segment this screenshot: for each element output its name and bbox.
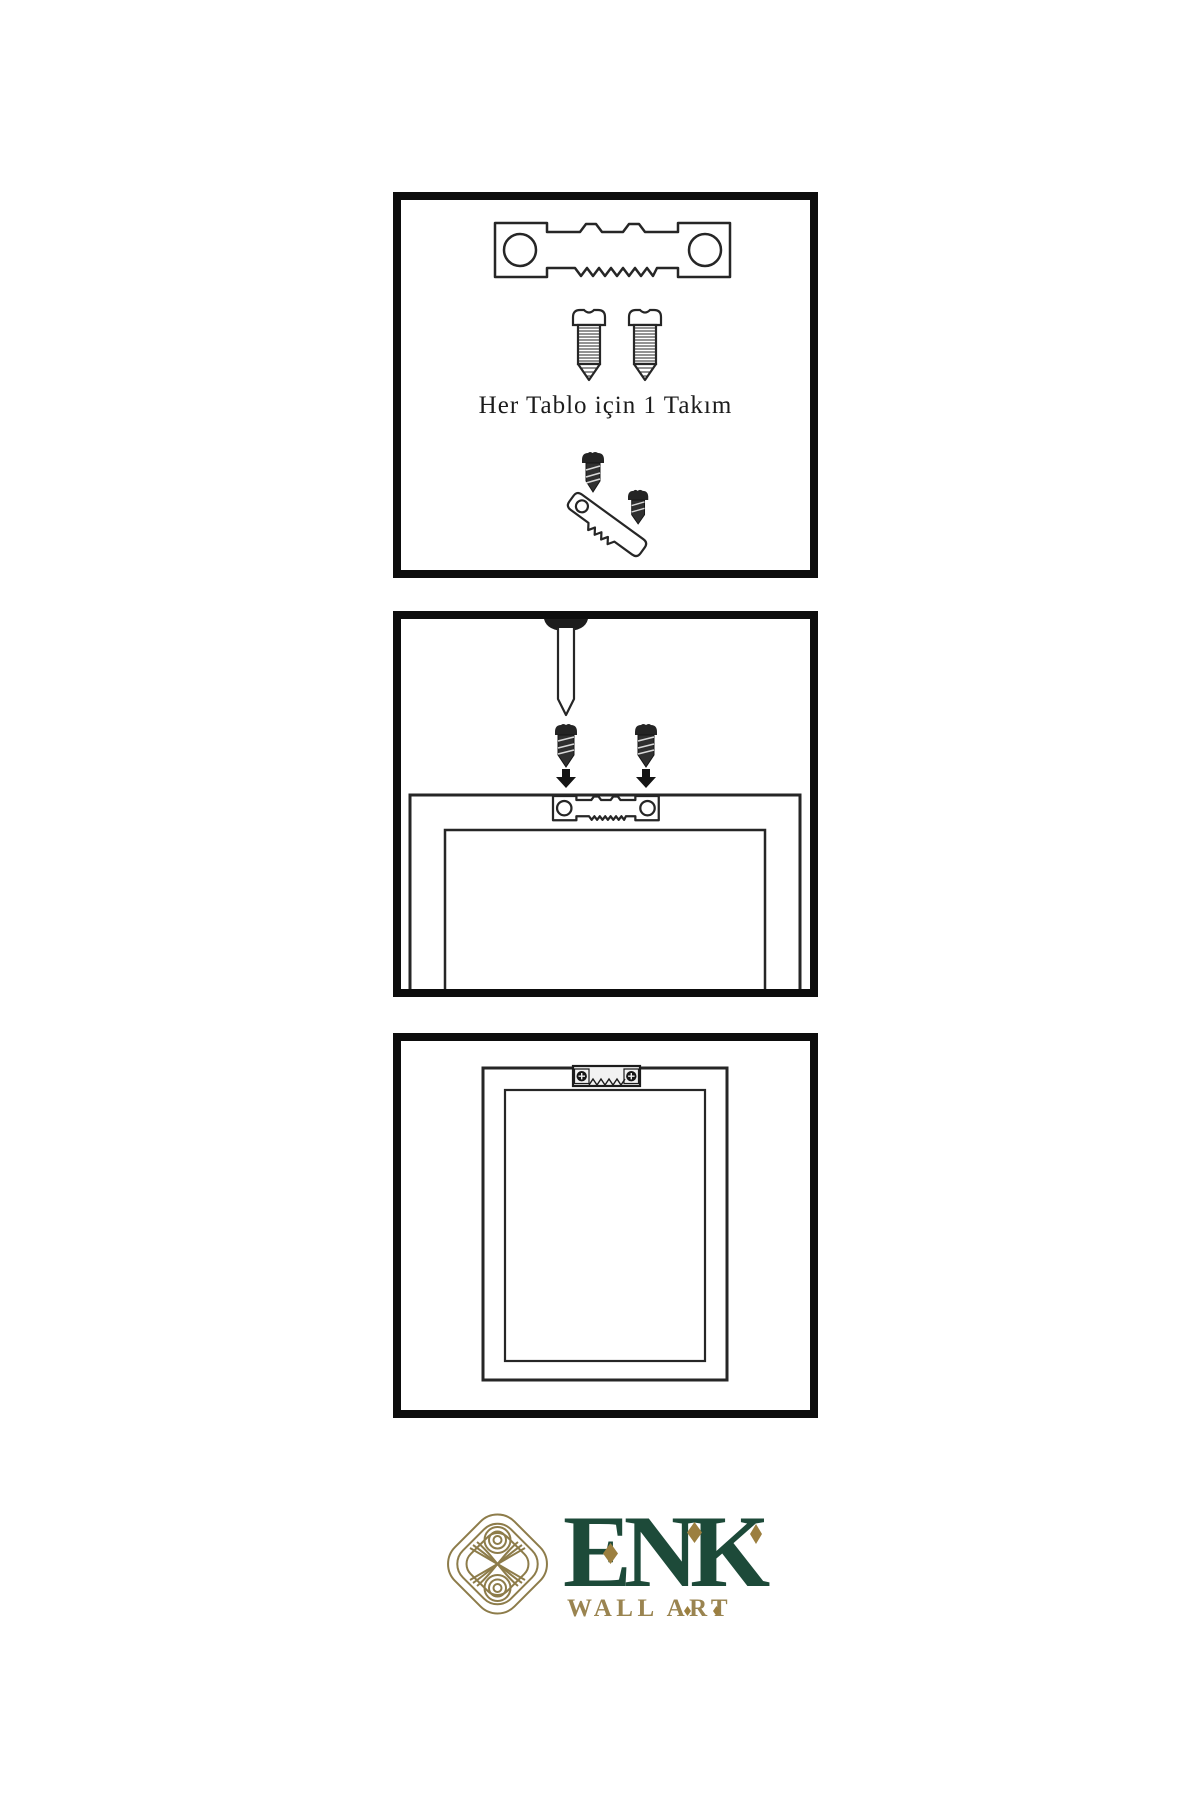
interlocking-knot-icon [437,1500,558,1628]
panel1-caption: Her Tablo için 1 Takım [401,392,810,420]
down-arrow-icon [556,769,576,788]
screw-icon [573,310,605,380]
logo-tagline-text: WALL ART [567,1594,732,1624]
down-arrow-icon [636,769,656,788]
wall-nail-icon [544,619,588,715]
panel-wall-mounting [393,611,818,997]
sawtooth-hanger-icon [495,223,730,277]
hardware-kit-illustration [401,200,810,570]
product-instruction-sheet: Her Tablo için 1 Takım [0,0,1200,1800]
screw-icon [635,724,657,767]
screw-into-hanger-icon [562,452,648,563]
hanging-frame-illustration [401,1041,810,1410]
frame-back-with-hanger-icon [410,795,800,989]
logo-brand-text: ENK [563,1501,762,1604]
wall-mounting-illustration [401,619,810,989]
screw-icon [555,724,577,767]
hanging-frame-with-hanger-icon [483,1066,727,1380]
panel-hardware-kit: Her Tablo için 1 Takım [393,192,818,578]
screw-icon [629,310,661,380]
panel-hanging-complete [393,1033,818,1418]
